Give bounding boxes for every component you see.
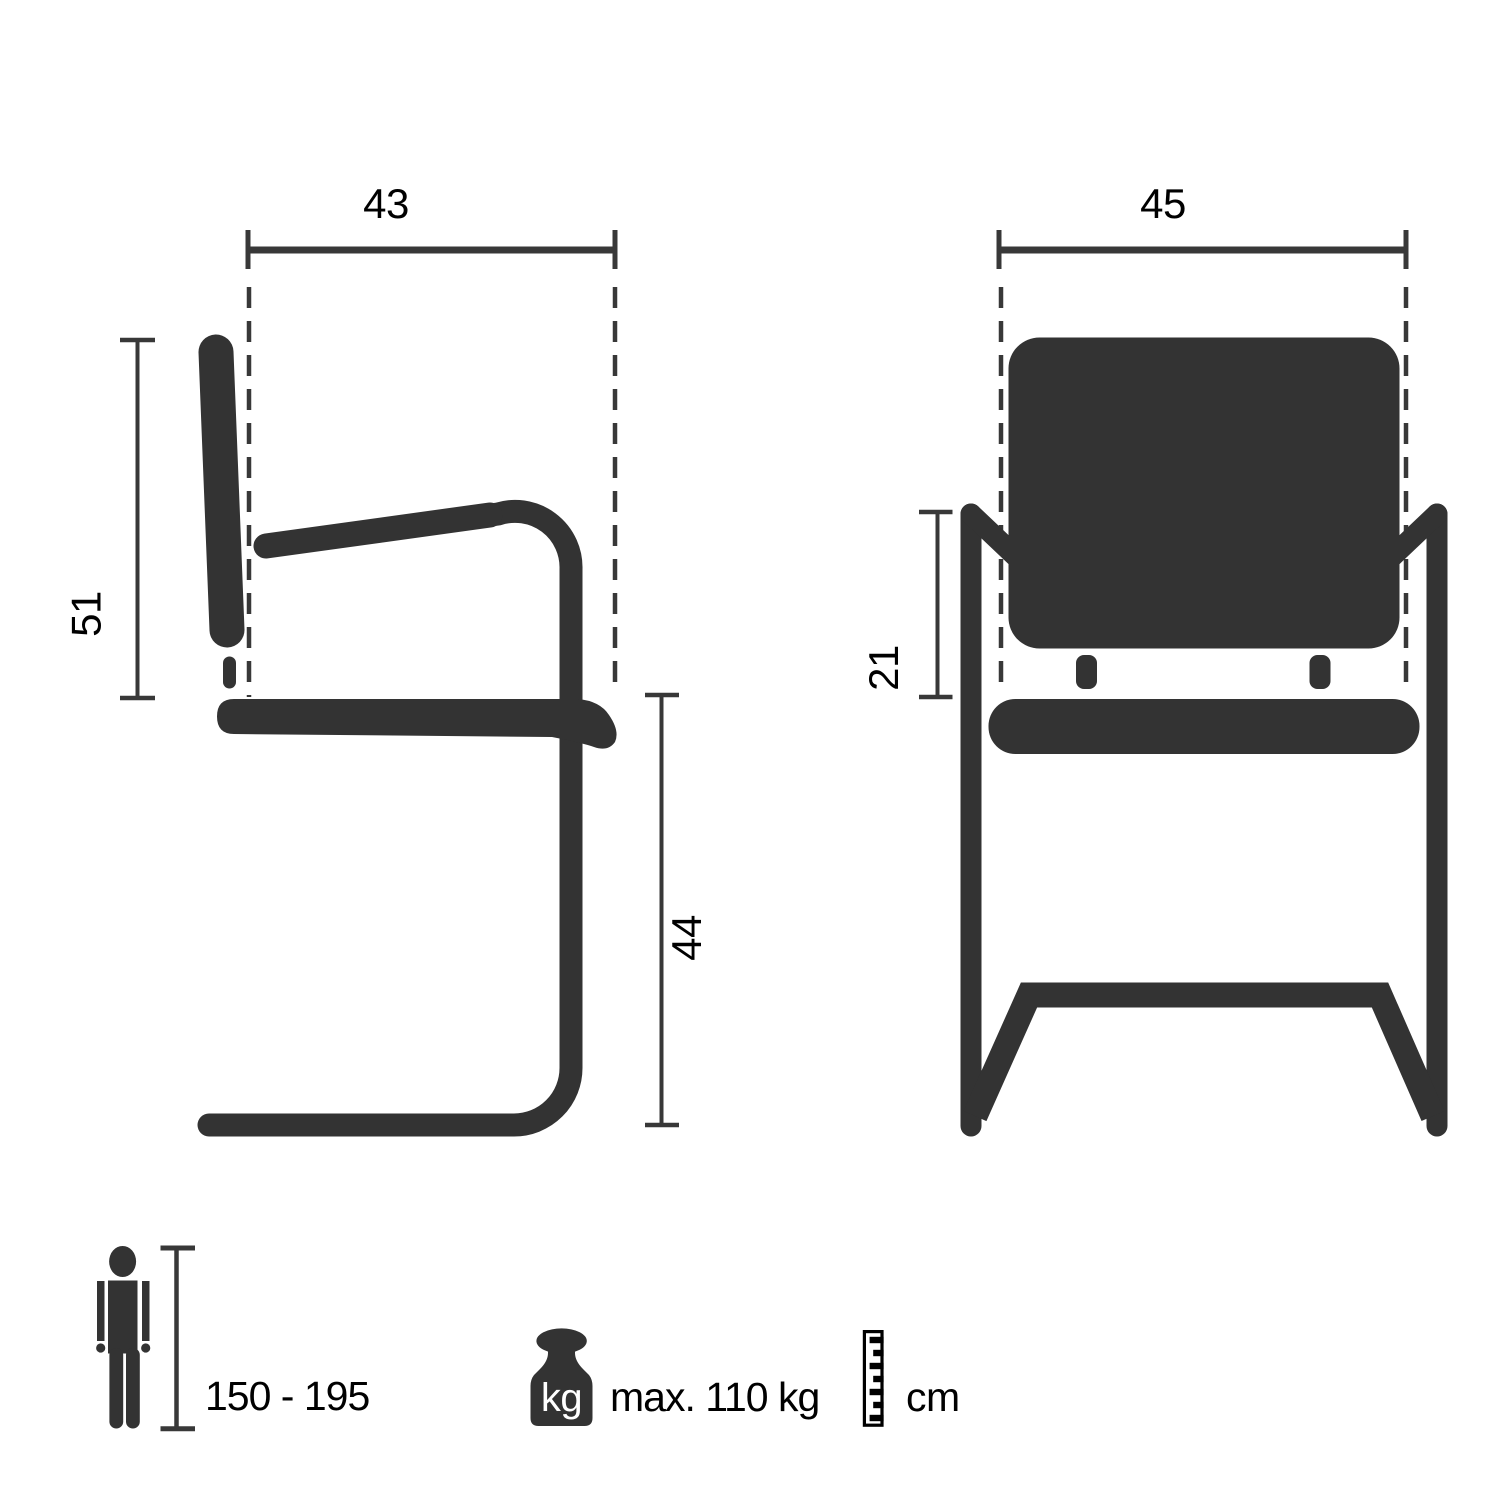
svg-text:kg: kg	[541, 1376, 582, 1420]
svg-text:21: 21	[860, 645, 907, 691]
svg-text:44: 44	[663, 915, 710, 961]
svg-text:150 - 195: 150 - 195	[205, 1373, 369, 1419]
svg-text:51: 51	[63, 591, 110, 637]
svg-text:45: 45	[1140, 180, 1186, 227]
svg-text:cm: cm	[906, 1374, 960, 1420]
svg-text:43: 43	[363, 180, 409, 227]
svg-text:max. 110 kg: max. 110 kg	[610, 1374, 819, 1420]
